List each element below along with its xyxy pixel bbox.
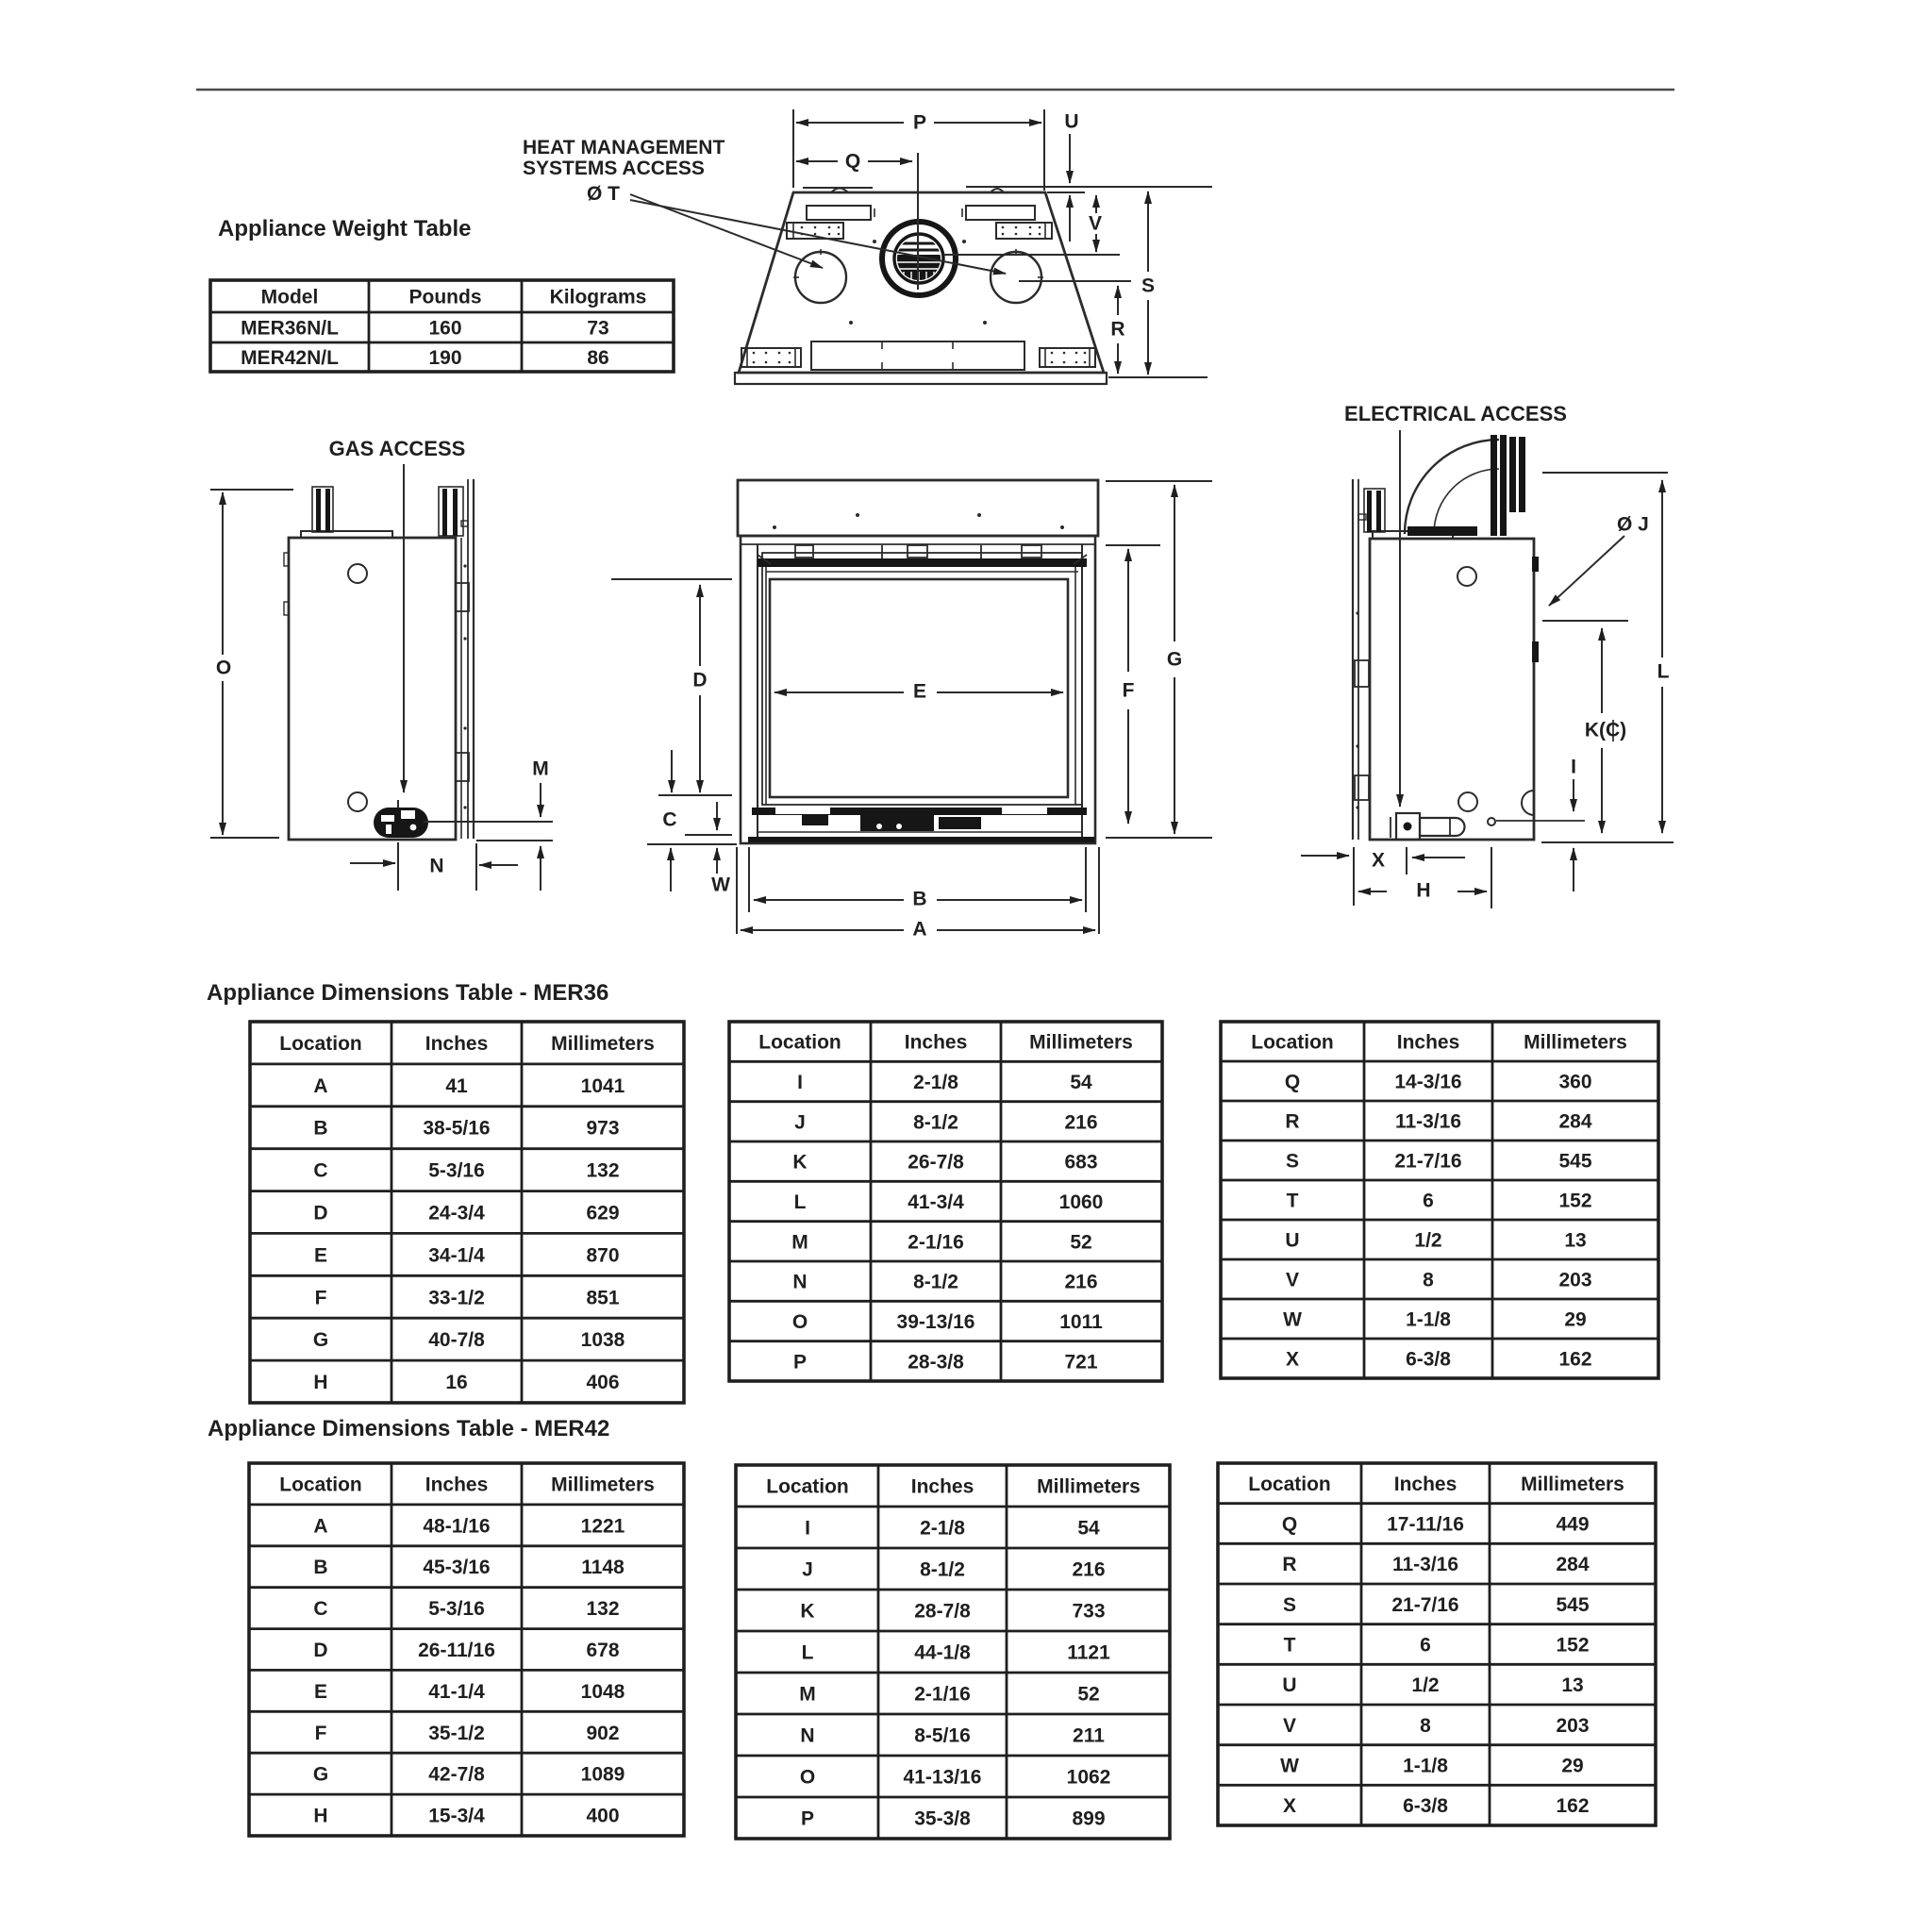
svg-text:T: T <box>1287 1191 1299 1212</box>
svg-text:132: 132 <box>586 1598 619 1620</box>
svg-text:152: 152 <box>1558 1191 1591 1212</box>
svg-text:2-1/8: 2-1/8 <box>913 1072 958 1093</box>
svg-text:52: 52 <box>1077 1684 1099 1706</box>
svg-text:W: W <box>711 874 730 896</box>
svg-text:1060: 1060 <box>1059 1191 1104 1213</box>
svg-text:F: F <box>1123 680 1135 702</box>
svg-text:203: 203 <box>1558 1270 1591 1291</box>
svg-text:52: 52 <box>1070 1231 1091 1253</box>
svg-text:545: 545 <box>1558 1151 1591 1173</box>
svg-text:1/2: 1/2 <box>1414 1230 1441 1252</box>
svg-text:21-7/16: 21-7/16 <box>1391 1594 1458 1616</box>
svg-text:B: B <box>313 1557 327 1578</box>
svg-text:E: E <box>913 681 926 703</box>
svg-text:T: T <box>1284 1635 1296 1657</box>
svg-text:B: B <box>912 889 926 910</box>
svg-text:C: C <box>313 1160 327 1182</box>
svg-text:HEAT MANAGEMENT: HEAT MANAGEMENT <box>523 137 724 158</box>
svg-text:P: P <box>913 112 926 134</box>
svg-text:6: 6 <box>1420 1635 1431 1657</box>
svg-text:X: X <box>1286 1349 1299 1371</box>
svg-text:5-3/16: 5-3/16 <box>428 1598 485 1620</box>
svg-text:R: R <box>1285 1111 1299 1133</box>
svg-text:162: 162 <box>1556 1795 1589 1817</box>
svg-text:26-7/8: 26-7/8 <box>908 1152 964 1174</box>
svg-text:L: L <box>794 1191 807 1213</box>
svg-text:G: G <box>313 1329 328 1351</box>
svg-text:Location: Location <box>1248 1474 1331 1495</box>
svg-text:S: S <box>1286 1151 1299 1173</box>
svg-text:54: 54 <box>1070 1072 1092 1093</box>
svg-text:K: K <box>800 1601 814 1623</box>
svg-text:1-1/8: 1-1/8 <box>1406 1309 1451 1331</box>
svg-text:Ø T: Ø T <box>587 183 620 205</box>
svg-text:U: U <box>1282 1674 1296 1696</box>
svg-text:1011: 1011 <box>1059 1311 1103 1333</box>
svg-text:545: 545 <box>1556 1594 1589 1616</box>
svg-text:Millimeters: Millimeters <box>1029 1032 1133 1054</box>
svg-text:2-1/8: 2-1/8 <box>920 1518 965 1540</box>
svg-text:683: 683 <box>1064 1152 1097 1174</box>
svg-text:P: P <box>793 1351 807 1373</box>
svg-text:211: 211 <box>1073 1725 1105 1747</box>
svg-text:449: 449 <box>1556 1514 1589 1536</box>
svg-text:B: B <box>313 1118 327 1140</box>
svg-text:Inches: Inches <box>1394 1474 1457 1495</box>
svg-text:J: J <box>802 1559 813 1581</box>
svg-text:A: A <box>313 1515 327 1537</box>
svg-text:S: S <box>1141 275 1155 297</box>
svg-text:132: 132 <box>586 1160 619 1182</box>
svg-text:X: X <box>1283 1795 1296 1817</box>
svg-text:S: S <box>1283 1594 1296 1616</box>
svg-text:Location: Location <box>758 1032 841 1054</box>
svg-text:H: H <box>313 1372 327 1393</box>
svg-text:1038: 1038 <box>581 1329 625 1351</box>
svg-text:284: 284 <box>1556 1554 1589 1575</box>
svg-text:8: 8 <box>1423 1270 1434 1291</box>
svg-text:K: K <box>792 1152 807 1174</box>
svg-text:17-11/16: 17-11/16 <box>1387 1514 1464 1536</box>
svg-text:N: N <box>792 1272 807 1293</box>
svg-text:8-1/2: 8-1/2 <box>913 1272 958 1293</box>
svg-text:Appliance Dimensions Table - M: Appliance Dimensions Table - MER42 <box>208 1416 609 1441</box>
svg-text:Millimeters: Millimeters <box>1521 1474 1624 1495</box>
svg-text:86: 86 <box>587 347 608 369</box>
svg-text:24-3/4: 24-3/4 <box>428 1203 485 1224</box>
svg-text:Millimeters: Millimeters <box>551 1033 655 1055</box>
svg-text:152: 152 <box>1556 1635 1589 1657</box>
svg-text:P: P <box>801 1808 814 1830</box>
svg-text:Inches: Inches <box>1397 1032 1460 1054</box>
svg-text:8-1/2: 8-1/2 <box>913 1111 958 1133</box>
svg-text:902: 902 <box>586 1723 619 1744</box>
svg-text:284: 284 <box>1558 1111 1591 1133</box>
svg-text:Millimeters: Millimeters <box>1037 1476 1141 1498</box>
svg-text:Inches: Inches <box>425 1033 489 1055</box>
svg-text:V: V <box>1283 1715 1296 1737</box>
svg-text:2-1/16: 2-1/16 <box>914 1684 971 1706</box>
svg-text:Inches: Inches <box>911 1476 974 1498</box>
svg-text:406: 406 <box>586 1372 619 1393</box>
svg-text:203: 203 <box>1556 1715 1589 1737</box>
svg-text:O: O <box>800 1767 815 1789</box>
svg-text:Q: Q <box>845 151 860 173</box>
svg-text:216: 216 <box>1064 1272 1097 1293</box>
svg-text:6-3/8: 6-3/8 <box>1406 1349 1451 1371</box>
svg-text:K(C): K(C) <box>1585 720 1626 741</box>
svg-text:13: 13 <box>1564 1230 1586 1252</box>
svg-text:F: F <box>315 1723 327 1744</box>
svg-text:39-13/16: 39-13/16 <box>897 1311 975 1333</box>
svg-text:41-3/4: 41-3/4 <box>908 1191 964 1213</box>
svg-text:Inches: Inches <box>425 1474 489 1495</box>
svg-text:15-3/4: 15-3/4 <box>428 1806 485 1827</box>
svg-text:N: N <box>429 856 443 877</box>
svg-text:34-1/4: 34-1/4 <box>428 1244 485 1266</box>
svg-text:Appliance Dimensions Table - M: Appliance Dimensions Table - MER36 <box>207 980 608 1006</box>
svg-text:X: X <box>1372 850 1385 872</box>
svg-text:M: M <box>791 1231 808 1253</box>
svg-text:E: E <box>314 1681 327 1703</box>
svg-text:11-3/16: 11-3/16 <box>1395 1111 1461 1133</box>
svg-text:C: C <box>662 809 676 831</box>
svg-text:162: 162 <box>1558 1349 1591 1371</box>
svg-text:1041: 1041 <box>581 1075 625 1097</box>
svg-text:H: H <box>1416 880 1430 902</box>
svg-text:O: O <box>216 658 231 679</box>
svg-text:360: 360 <box>1558 1072 1591 1093</box>
svg-text:899: 899 <box>1072 1808 1105 1830</box>
svg-text:Q: Q <box>1285 1072 1300 1093</box>
svg-text:I: I <box>797 1072 803 1093</box>
svg-text:Location: Location <box>766 1476 849 1498</box>
svg-text:1121: 1121 <box>1067 1642 1110 1664</box>
svg-text:G: G <box>313 1764 328 1786</box>
svg-text:40-7/8: 40-7/8 <box>428 1329 485 1351</box>
svg-text:42-7/8: 42-7/8 <box>428 1764 485 1786</box>
svg-text:M: M <box>799 1684 816 1706</box>
svg-text:1-1/8: 1-1/8 <box>1403 1756 1448 1777</box>
svg-text:160: 160 <box>428 318 461 340</box>
svg-text:41: 41 <box>445 1075 468 1097</box>
svg-text:629: 629 <box>586 1203 619 1224</box>
svg-text:C: C <box>313 1598 327 1620</box>
svg-text:73: 73 <box>587 318 608 340</box>
svg-text:6-3/8: 6-3/8 <box>1403 1795 1448 1817</box>
svg-text:41-1/4: 41-1/4 <box>428 1681 485 1703</box>
svg-text:Millimeters: Millimeters <box>1524 1032 1627 1054</box>
svg-text:45-3/16: 45-3/16 <box>423 1557 490 1578</box>
svg-text:54: 54 <box>1077 1518 1100 1540</box>
svg-text:Kilograms: Kilograms <box>550 287 647 308</box>
svg-text:1048: 1048 <box>581 1681 625 1703</box>
svg-text:35-3/8: 35-3/8 <box>914 1808 971 1830</box>
svg-text:V: V <box>1286 1270 1299 1291</box>
svg-text:1/2: 1/2 <box>1411 1674 1439 1696</box>
svg-text:29: 29 <box>1564 1309 1586 1331</box>
svg-text:F: F <box>315 1287 327 1308</box>
svg-text:851: 851 <box>586 1287 619 1308</box>
svg-text:870: 870 <box>586 1244 619 1266</box>
svg-text:8-1/2: 8-1/2 <box>920 1559 965 1581</box>
svg-text:973: 973 <box>586 1118 619 1140</box>
svg-text:GAS ACCESS: GAS ACCESS <box>329 437 466 460</box>
svg-text:721: 721 <box>1064 1351 1097 1373</box>
svg-text:678: 678 <box>586 1640 619 1661</box>
svg-text:L: L <box>802 1642 814 1664</box>
svg-text:Q: Q <box>1282 1514 1297 1536</box>
svg-text:ELECTRICAL ACCESS: ELECTRICAL ACCESS <box>1344 402 1567 425</box>
svg-text:48-1/16: 48-1/16 <box>423 1515 490 1537</box>
svg-text:1062: 1062 <box>1067 1767 1111 1789</box>
svg-text:H: H <box>313 1806 327 1827</box>
svg-text:13: 13 <box>1561 1674 1583 1696</box>
svg-text:Ø J: Ø J <box>1617 514 1649 536</box>
svg-text:26-11/16: 26-11/16 <box>418 1640 495 1661</box>
svg-text:Location: Location <box>279 1033 362 1055</box>
svg-text:W: W <box>1280 1756 1299 1777</box>
svg-text:G: G <box>1167 649 1182 671</box>
svg-text:1089: 1089 <box>581 1764 625 1786</box>
svg-text:44-1/8: 44-1/8 <box>914 1642 971 1664</box>
svg-text:216: 216 <box>1072 1559 1105 1581</box>
svg-text:Appliance Weight Table: Appliance Weight Table <box>218 216 471 241</box>
svg-text:28-7/8: 28-7/8 <box>914 1601 971 1623</box>
svg-text:D: D <box>313 1640 327 1661</box>
svg-text:D: D <box>692 670 707 691</box>
svg-text:U: U <box>1285 1230 1299 1252</box>
svg-text:Pounds: Pounds <box>409 287 482 308</box>
svg-text:1148: 1148 <box>581 1557 625 1578</box>
svg-text:E: E <box>314 1244 327 1266</box>
svg-text:N: N <box>800 1725 814 1747</box>
svg-text:MER36N/L: MER36N/L <box>241 318 339 340</box>
svg-text:400: 400 <box>586 1806 619 1827</box>
svg-text:38-5/16: 38-5/16 <box>423 1118 490 1140</box>
svg-text:8-5/16: 8-5/16 <box>914 1725 971 1747</box>
svg-text:D: D <box>313 1203 327 1224</box>
svg-text:A: A <box>912 919 926 941</box>
svg-text:I: I <box>805 1518 810 1540</box>
svg-text:14-3/16: 14-3/16 <box>1394 1072 1461 1093</box>
svg-text:1221: 1221 <box>581 1515 625 1537</box>
svg-text:W: W <box>1283 1309 1302 1331</box>
svg-text:16: 16 <box>445 1372 467 1393</box>
svg-text:V: V <box>1089 213 1102 235</box>
svg-text:8: 8 <box>1420 1715 1431 1737</box>
svg-text:733: 733 <box>1072 1601 1105 1623</box>
svg-text:Inches: Inches <box>905 1032 968 1054</box>
svg-text:L: L <box>1657 661 1670 683</box>
svg-text:Millimeters: Millimeters <box>551 1474 655 1495</box>
svg-text:11-3/16: 11-3/16 <box>1392 1554 1458 1575</box>
svg-text:190: 190 <box>428 347 461 369</box>
svg-text:Location: Location <box>279 1474 362 1495</box>
svg-text:A: A <box>313 1075 327 1097</box>
svg-text:O: O <box>792 1311 808 1333</box>
svg-text:U: U <box>1064 111 1078 133</box>
svg-text:2-1/16: 2-1/16 <box>908 1231 964 1253</box>
svg-text:35-1/2: 35-1/2 <box>428 1723 485 1744</box>
svg-text:28-3/8: 28-3/8 <box>908 1351 964 1373</box>
svg-text:Model: Model <box>261 287 319 308</box>
svg-text:216: 216 <box>1064 1111 1097 1133</box>
svg-text:R: R <box>1282 1554 1296 1575</box>
svg-text:5-3/16: 5-3/16 <box>428 1160 485 1182</box>
svg-text:6: 6 <box>1423 1191 1434 1212</box>
svg-text:R: R <box>1110 319 1124 341</box>
svg-text:29: 29 <box>1561 1756 1583 1777</box>
svg-text:MER42N/L: MER42N/L <box>241 347 339 369</box>
svg-text:33-1/2: 33-1/2 <box>428 1287 485 1308</box>
svg-text:41-13/16: 41-13/16 <box>904 1767 982 1789</box>
svg-text:J: J <box>794 1111 806 1133</box>
svg-text:SYSTEMS ACCESS: SYSTEMS ACCESS <box>523 158 705 179</box>
svg-text:21-7/16: 21-7/16 <box>1394 1151 1461 1173</box>
svg-text:Location: Location <box>1251 1032 1334 1054</box>
svg-text:M: M <box>532 758 549 780</box>
svg-text:I: I <box>1571 757 1576 778</box>
